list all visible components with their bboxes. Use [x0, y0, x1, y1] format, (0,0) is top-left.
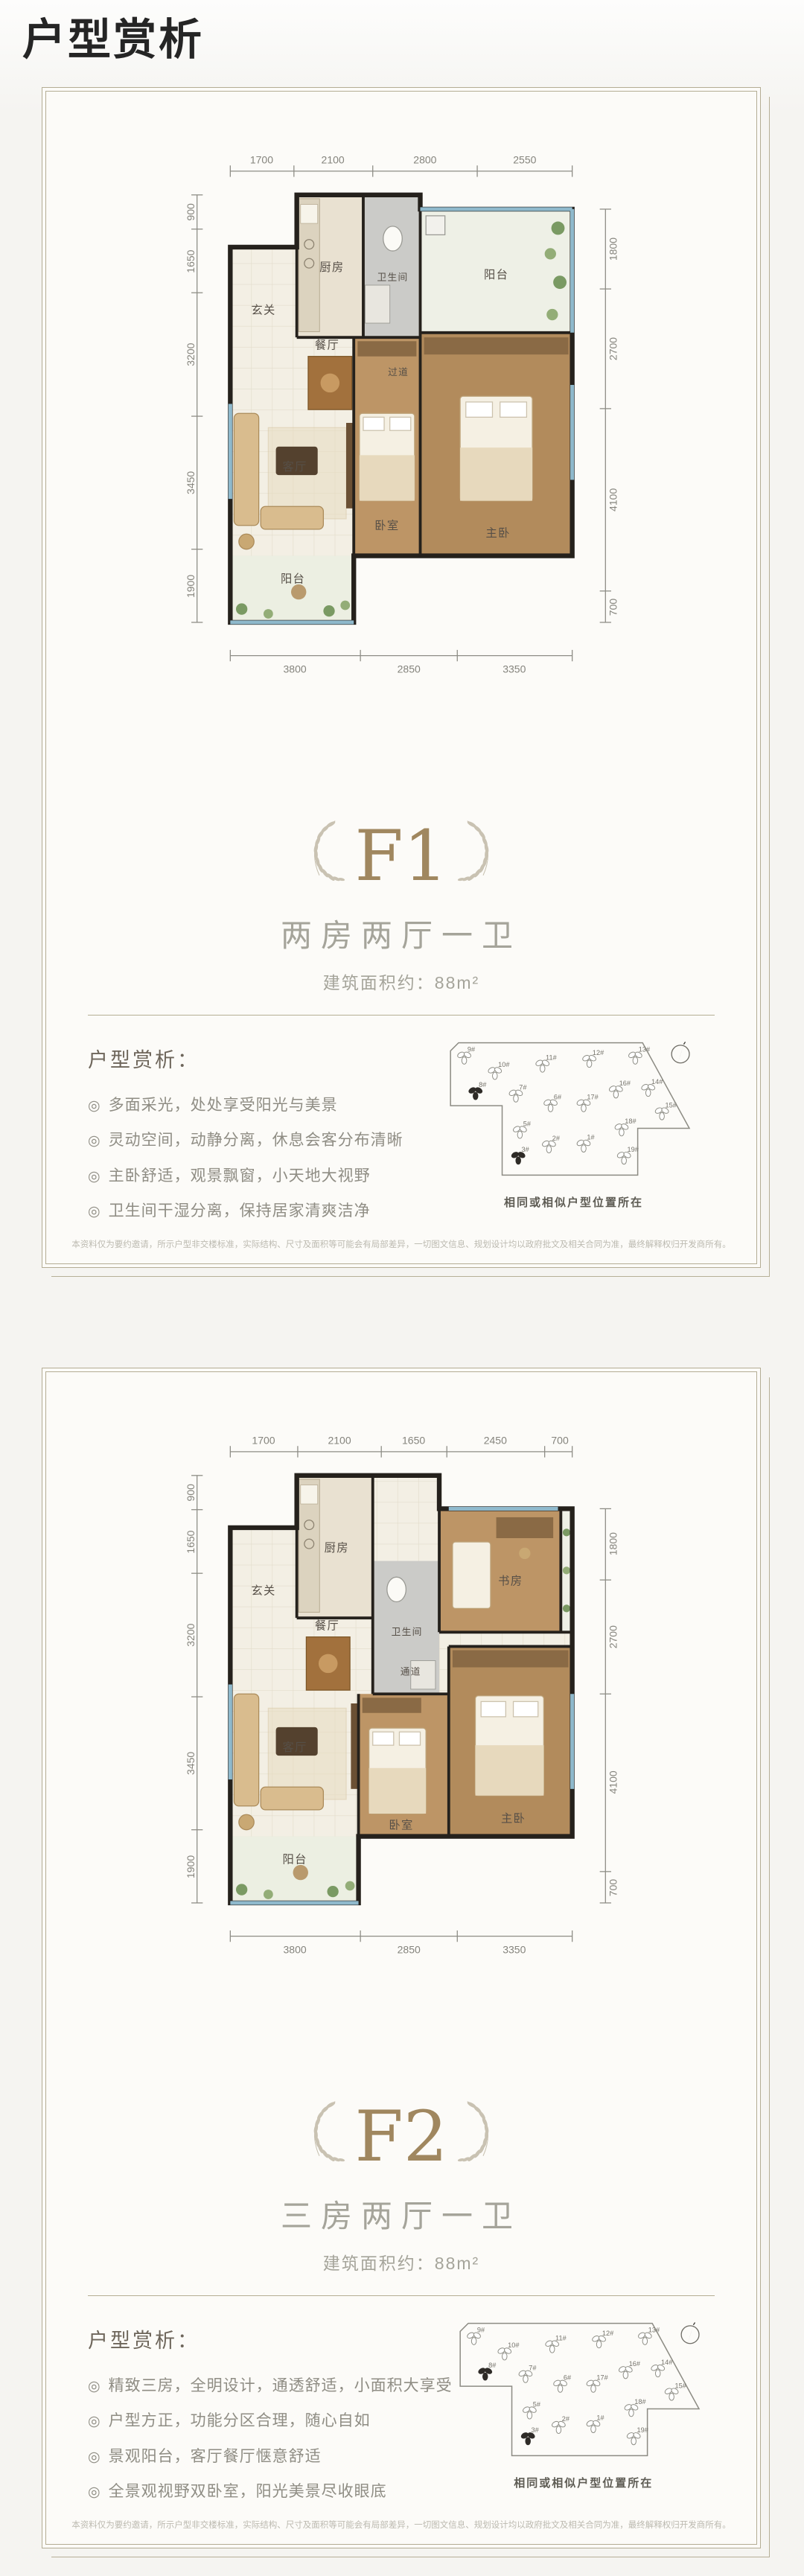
svg-text:700: 700: [607, 1879, 619, 1897]
siteplan-building: 13#: [628, 1046, 651, 1065]
svg-text:11#: 11#: [546, 1053, 558, 1061]
room-label-living: 客厅: [283, 461, 307, 474]
emblem-f1: F1: [46, 800, 756, 891]
dimensions-bottom: 3800 2850 3350: [230, 650, 572, 675]
furniture-kitchen: [299, 199, 319, 332]
svg-text:6#: 6#: [564, 2373, 572, 2381]
siteplan-diagram: 9#10#11#12#13#8#7#6#17#16#14#15#5#18#2#1…: [449, 1041, 699, 1187]
siteplan-building: 15#: [654, 1101, 677, 1120]
siteplan-building: 11#: [544, 2334, 567, 2353]
svg-text:14#: 14#: [651, 1078, 663, 1085]
dimensions-right: 1800 2700 4100 700: [600, 1508, 619, 1902]
svg-text:8#: 8#: [488, 2362, 497, 2369]
svg-text:3200: 3200: [185, 1623, 197, 1646]
svg-text:1650: 1650: [185, 1530, 197, 1553]
svg-text:3350: 3350: [502, 663, 526, 675]
unit-code: F1: [351, 823, 450, 891]
svg-text:16#: 16#: [628, 2360, 640, 2368]
siteplan-building: 12#: [581, 1049, 604, 1068]
siteplan-building: 10#: [497, 2341, 520, 2360]
room-label-study: 书房: [498, 1575, 523, 1588]
furniture-kitchen: [299, 1479, 319, 1613]
laurel-left-icon: [293, 806, 345, 891]
siteplan-building: 16#: [618, 2360, 641, 2379]
siteplan-building: 7#: [518, 2364, 537, 2382]
laurel-left-icon: [293, 2087, 345, 2172]
svg-text:2800: 2800: [413, 154, 436, 166]
svg-text:5#: 5#: [533, 2400, 541, 2408]
furniture-dining-table: [306, 1637, 350, 1690]
svg-text:13#: 13#: [648, 2327, 660, 2334]
svg-text:18#: 18#: [634, 2398, 646, 2406]
svg-text:7#: 7#: [529, 2364, 537, 2371]
svg-text:900: 900: [185, 203, 197, 221]
analysis-bullet: 卫生间干湿分离，保持居家清爽洁净: [88, 1193, 433, 1228]
svg-text:3450: 3450: [185, 471, 197, 494]
siteplan-building: 18#: [624, 2398, 647, 2417]
divider: [88, 2295, 715, 2296]
siteplan-building: 3#: [511, 1146, 530, 1164]
svg-text:1650: 1650: [402, 1435, 425, 1447]
dimensions-right: 1800 2700 4100 700: [600, 209, 619, 622]
siteplan-building: 6#: [543, 1093, 562, 1112]
room-label-bath: 卫生间: [377, 272, 408, 283]
room-label-balcony-bottom: 阳台: [283, 1853, 307, 1866]
siteplan-building: 8#: [477, 2362, 497, 2380]
svg-text:10#: 10#: [508, 2341, 520, 2349]
svg-text:3#: 3#: [521, 1146, 529, 1153]
laurel-right-icon: [457, 2087, 509, 2172]
svg-text:2700: 2700: [607, 1625, 619, 1648]
room-label-balcony-bottom: 阳台: [281, 573, 305, 585]
svg-text:2#: 2#: [562, 2415, 570, 2423]
svg-text:6#: 6#: [553, 1093, 561, 1100]
svg-text:3200: 3200: [185, 342, 197, 366]
disclaimer-text: 本资料仅为要约邀请，所示户型非交楼标准，实际结构、尺寸及面积等可能会有局部差异，…: [61, 1238, 741, 1250]
room-label-living: 客厅: [283, 1741, 307, 1754]
svg-text:3450: 3450: [185, 1752, 197, 1775]
siteplan-building: 15#: [664, 2382, 687, 2400]
emblem-f2: F2: [46, 2081, 756, 2172]
siteplan-building: 9#: [456, 1046, 476, 1065]
siteplan-building: 17#: [586, 2373, 609, 2392]
siteplan-caption: 相同或相似户型位置所在: [514, 2475, 653, 2490]
analysis-heading: 户型赏析：: [88, 2324, 453, 2353]
svg-text:1#: 1#: [596, 2414, 604, 2422]
svg-text:12#: 12#: [592, 1049, 604, 1056]
card-f2: 玄关 厨房 卫生间 书房 通道 餐厅 客厅 卧室 主卧 阳台 1700 2100…: [42, 1368, 761, 2548]
siteplan-diagram: 9#10#11#12#13#8#7#6#17#16#14#15#5#18#2#1…: [459, 2321, 709, 2467]
svg-text:1#: 1#: [587, 1134, 595, 1141]
siteplan-building: 14#: [650, 2359, 673, 2377]
svg-text:1700: 1700: [252, 1435, 275, 1447]
siteplan-building: 16#: [608, 1080, 631, 1098]
svg-text:17#: 17#: [587, 1093, 599, 1100]
svg-text:13#: 13#: [638, 1046, 650, 1053]
svg-text:900: 900: [185, 1484, 197, 1502]
svg-text:3800: 3800: [284, 1944, 307, 1956]
svg-text:2#: 2#: [552, 1135, 560, 1142]
room-label-master: 主卧: [501, 1812, 526, 1825]
room-label-corridor: 过道: [388, 366, 409, 377]
room-label-entry: 玄关: [251, 1584, 275, 1597]
page-title: 户型赏析: [22, 4, 204, 67]
svg-text:700: 700: [607, 599, 619, 616]
unit-type-label: 三房两厅一卫: [46, 2191, 756, 2237]
svg-text:1700: 1700: [250, 154, 273, 166]
svg-text:18#: 18#: [625, 1118, 636, 1125]
unit-code: F2: [351, 2103, 450, 2172]
siteplan-building: 2#: [551, 2415, 570, 2434]
svg-text:1650: 1650: [185, 249, 197, 272]
siteplan-building: 13#: [637, 2327, 660, 2345]
analysis-bullet: 多面采光，处处享受阳光与美景: [88, 1088, 433, 1123]
dimensions-bottom: 3800 2850 3350: [230, 1931, 572, 1956]
siteplan-building: 1#: [575, 1134, 595, 1152]
room-label-bedroom: 卧室: [389, 1819, 413, 1831]
svg-text:17#: 17#: [596, 2373, 608, 2381]
svg-text:1900: 1900: [185, 1855, 197, 1878]
analysis-bullet: 精致三房，全明设计，通透舒适，小面积大享受: [88, 2368, 453, 2403]
svg-text:3#: 3#: [531, 2426, 539, 2434]
svg-text:2850: 2850: [398, 1944, 421, 1956]
room-label-kitchen: 厨房: [319, 261, 344, 274]
svg-text:2700: 2700: [607, 337, 619, 360]
siteplan-building: 5#: [512, 1120, 532, 1138]
floorplan-f2: 玄关 厨房 卫生间 书房 通道 餐厅 客厅 卧室 主卧 阳台 1700 2100…: [126, 1418, 677, 1989]
siteplan-building: 19#: [626, 2426, 649, 2445]
compass-icon: [671, 1042, 689, 1063]
siteplan-building: 19#: [616, 1146, 639, 1164]
unit-type-label: 两房两厅一卫: [46, 911, 756, 956]
room-label-dining: 餐厅: [315, 1619, 339, 1632]
svg-text:15#: 15#: [674, 2382, 686, 2389]
analysis-bullet: 景观阳台，客厅餐厅惬意舒适: [88, 2439, 453, 2474]
room-label-kitchen: 厨房: [325, 1542, 349, 1555]
analysis-bullet: 户型方正，功能分区合理，随心自如: [88, 2403, 453, 2438]
siteplan-building: 18#: [613, 1118, 636, 1136]
furniture-dining-table: [308, 357, 352, 409]
room-label-master: 主卧: [486, 527, 511, 540]
svg-text:700: 700: [551, 1435, 569, 1447]
siteplan-building: 10#: [487, 1061, 510, 1080]
svg-text:2850: 2850: [398, 663, 421, 675]
svg-text:15#: 15#: [665, 1101, 677, 1109]
svg-text:11#: 11#: [555, 2334, 567, 2341]
analysis-bullet: 主卧舒适，观景飘窗，小天地大视野: [88, 1158, 433, 1193]
analysis-heading: 户型赏析：: [88, 1044, 433, 1073]
floorplan-f1: 玄关 厨房 卫生间 阳台 过道 餐厅 客厅 卧室 主卧 阳台 1700 2100…: [126, 138, 677, 708]
siteplan-building: 8#: [468, 1081, 487, 1100]
svg-text:14#: 14#: [661, 2359, 673, 2366]
unit-area-label: 建筑面积约：88m²: [46, 2249, 756, 2274]
svg-text:9#: 9#: [467, 1046, 475, 1053]
siteplan-building: 5#: [522, 2400, 541, 2419]
divider: [88, 1015, 715, 1016]
dimensions-left: 900 1650 3200 3450 1900: [185, 1476, 202, 1903]
dimensions-top: 1700 2100 1650 2450 700: [230, 1435, 572, 1458]
svg-text:2100: 2100: [328, 1435, 351, 1447]
svg-text:19#: 19#: [636, 2426, 648, 2434]
dimensions-top: 1700 2100 2800 2550: [230, 154, 572, 177]
siteplan-building: 6#: [552, 2373, 572, 2392]
svg-text:1900: 1900: [185, 575, 197, 598]
card-f1-frame: 玄关 厨房 卫生间 阳台 过道 餐厅 客厅 卧室 主卧 阳台 1700 2100…: [45, 91, 757, 1264]
analysis-bullets: 多面采光，处处享受阳光与美景 灵动空间，动静分离，休息会客分布清晰 主卧舒适，观…: [88, 1088, 433, 1228]
room-label-dining: 餐厅: [315, 339, 339, 351]
siteplan-building: 2#: [541, 1135, 561, 1153]
svg-text:8#: 8#: [479, 1081, 487, 1088]
svg-text:10#: 10#: [498, 1061, 510, 1068]
dimensions-left: 900 1650 3200 3450 1900: [185, 195, 202, 622]
siteplan-building: 9#: [466, 2327, 485, 2345]
room-label-balcony-top: 阳台: [484, 269, 508, 281]
siteplan-building: 17#: [575, 1093, 599, 1112]
card-f2-frame: 玄关 厨房 卫生间 书房 通道 餐厅 客厅 卧室 主卧 阳台 1700 2100…: [45, 1371, 757, 2545]
disclaimer-text: 本资料仅为要约邀请，所示户型非交楼标准，实际结构、尺寸及面积等可能会有局部差异，…: [61, 2519, 741, 2531]
room-label-corridor: 通道: [401, 1666, 421, 1677]
svg-text:5#: 5#: [523, 1120, 531, 1127]
card-f1: 玄关 厨房 卫生间 阳台 过道 餐厅 客厅 卧室 主卧 阳台 1700 2100…: [42, 87, 761, 1268]
siteplan-building: 11#: [535, 1053, 557, 1072]
room-label-entry: 玄关: [251, 304, 275, 316]
siteplan-building: 1#: [586, 2414, 605, 2433]
compass-icon: [681, 2323, 699, 2344]
svg-text:19#: 19#: [627, 1146, 639, 1153]
analysis-bullet: 灵动空间，动静分离，休息会客分布清晰: [88, 1123, 433, 1158]
svg-text:2100: 2100: [322, 154, 345, 166]
svg-text:4100: 4100: [607, 488, 619, 511]
svg-text:1800: 1800: [607, 1532, 619, 1555]
svg-text:4100: 4100: [607, 1770, 619, 1794]
room-label-bedroom: 卧室: [374, 520, 399, 532]
svg-text:2450: 2450: [484, 1435, 507, 1447]
svg-text:1800: 1800: [607, 237, 619, 261]
svg-text:9#: 9#: [477, 2327, 485, 2334]
svg-text:3800: 3800: [284, 663, 307, 675]
siteplan-building: 12#: [591, 2330, 614, 2348]
siteplan-building: 3#: [520, 2426, 540, 2445]
svg-text:12#: 12#: [602, 2330, 614, 2337]
unit-area-label: 建筑面积约：88m²: [46, 969, 756, 994]
siteplan-building: 14#: [640, 1078, 663, 1097]
siteplan-building: 7#: [508, 1083, 527, 1102]
svg-text:2550: 2550: [513, 154, 536, 166]
svg-text:3350: 3350: [502, 1944, 526, 1956]
svg-text:7#: 7#: [519, 1083, 527, 1091]
svg-text:16#: 16#: [619, 1080, 631, 1087]
laurel-right-icon: [457, 806, 509, 891]
analysis-bullets: 精致三房，全明设计，通透舒适，小面积大享受 户型方正，功能分区合理，随心自如 景…: [88, 2368, 453, 2509]
analysis-bullet: 全景观视野双卧室，阳光美景尽收眼底: [88, 2474, 453, 2509]
room-label-bath: 卫生间: [392, 1626, 423, 1637]
siteplan-caption: 相同或相似户型位置所在: [504, 1194, 643, 1210]
